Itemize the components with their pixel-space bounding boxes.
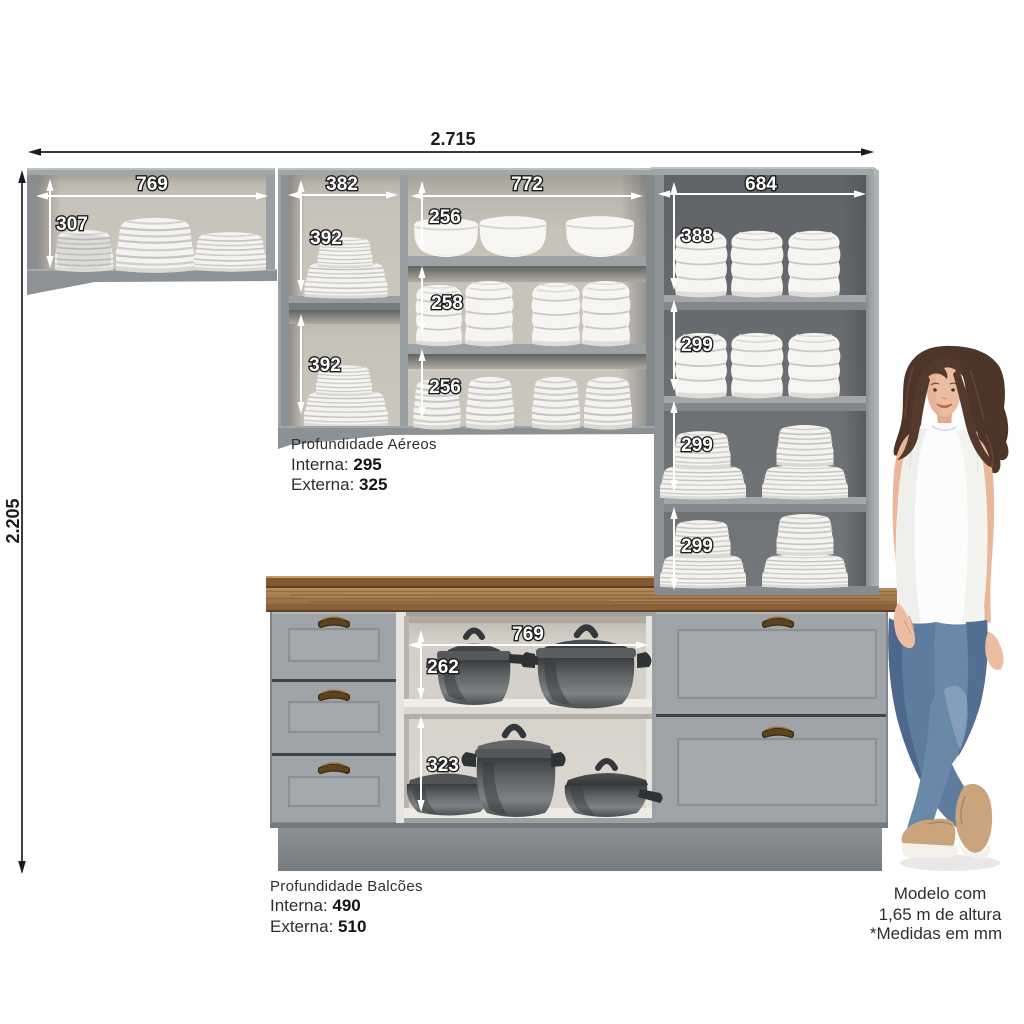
svg-text:299: 299 xyxy=(681,335,713,356)
svg-text:Modelo com: Modelo com xyxy=(894,884,987,903)
svg-text:262: 262 xyxy=(427,657,459,678)
svg-text:*Medidas em mm: *Medidas em mm xyxy=(870,924,1002,943)
svg-text:Externa: 325: Externa: 325 xyxy=(291,475,387,494)
svg-text:Profundidade Aéreos: Profundidade Aéreos xyxy=(291,436,437,453)
svg-text:299: 299 xyxy=(681,435,713,456)
svg-text:258: 258 xyxy=(431,293,463,314)
svg-text:256: 256 xyxy=(429,377,461,398)
svg-text:772: 772 xyxy=(511,174,543,195)
svg-text:256: 256 xyxy=(429,207,461,228)
svg-text:323: 323 xyxy=(427,755,459,776)
svg-text:769: 769 xyxy=(136,174,168,195)
svg-text:392: 392 xyxy=(309,355,341,376)
svg-text:299: 299 xyxy=(681,536,713,557)
svg-text:388: 388 xyxy=(681,226,713,247)
svg-text:Interna: 490: Interna: 490 xyxy=(270,896,361,915)
svg-text:769: 769 xyxy=(512,624,544,645)
svg-text:Profundidade Balcões: Profundidade Balcões xyxy=(270,878,423,895)
svg-text:307: 307 xyxy=(56,214,88,235)
svg-text:382: 382 xyxy=(326,174,358,195)
svg-text:1,65 m de altura: 1,65 m de altura xyxy=(879,905,1002,924)
svg-text:Interna: 295: Interna: 295 xyxy=(291,455,382,474)
svg-text:Externa: 510: Externa: 510 xyxy=(270,917,366,936)
svg-text:2.205: 2.205 xyxy=(3,498,23,543)
svg-text:392: 392 xyxy=(310,228,342,249)
svg-text:684: 684 xyxy=(745,174,777,195)
svg-text:2.715: 2.715 xyxy=(430,129,475,149)
